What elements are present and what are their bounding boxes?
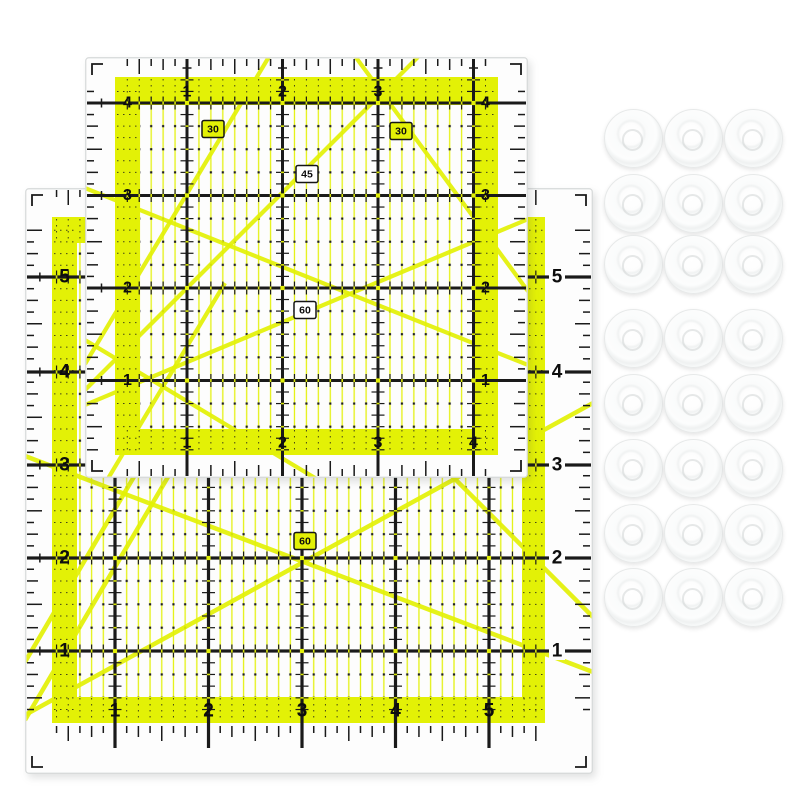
- ruler-number-right: 2: [552, 548, 563, 569]
- ruler-number-right: 4: [481, 95, 490, 112]
- disc-inner-ring: [742, 194, 764, 216]
- plastic-disc: [604, 439, 663, 498]
- plastic-disc: [724, 109, 783, 168]
- plastic-disc: [604, 109, 663, 168]
- disc-inner-ring: [742, 255, 764, 277]
- plastic-disc: [664, 235, 723, 294]
- ruler-number-right: 5: [552, 267, 563, 288]
- disc-inner-ring: [682, 329, 704, 351]
- angle-label: 30: [207, 124, 219, 136]
- angle-label: 60: [299, 536, 311, 548]
- ruler-number-left: 5: [59, 267, 70, 288]
- ruler-number-bottom: 3: [297, 701, 308, 722]
- disc-inner-ring: [622, 194, 644, 216]
- disc-inner-ring: [622, 588, 644, 610]
- plastic-disc: [664, 309, 723, 368]
- ruler-number-bottom: 2: [203, 701, 214, 722]
- disc-inner-ring: [682, 129, 704, 151]
- plastic-disc: [724, 504, 783, 563]
- plastic-disc: [604, 235, 663, 294]
- disc-inner-ring: [682, 394, 704, 416]
- plastic-disc: [664, 374, 723, 433]
- plastic-disc: [724, 374, 783, 433]
- disc-inner-ring: [682, 194, 704, 216]
- disc-inner-ring: [622, 255, 644, 277]
- plastic-disc: [664, 174, 723, 233]
- disc-inner-ring: [742, 459, 764, 481]
- disc-inner-ring: [682, 459, 704, 481]
- angle-label: 30: [395, 126, 407, 138]
- plastic-disc: [604, 309, 663, 368]
- plastic-disc: [724, 174, 783, 233]
- plastic-disc: [664, 439, 723, 498]
- plastic-disc: [724, 309, 783, 368]
- ruler-number-bottom: 3: [374, 435, 383, 452]
- ruler-number-bottom: 4: [469, 435, 478, 452]
- ruler-number-right: 1: [552, 641, 563, 662]
- ruler-number-right: 2: [481, 280, 490, 297]
- disc-inner-ring: [742, 588, 764, 610]
- disc-inner-ring: [622, 394, 644, 416]
- disc-inner-ring: [682, 255, 704, 277]
- ruler-number-right: 3: [481, 187, 490, 204]
- ruler-number-top: 3: [374, 84, 383, 101]
- ruler-number-top: 1: [183, 84, 192, 101]
- ruler-number-left: 4: [59, 362, 70, 383]
- plastic-disc: [664, 109, 723, 168]
- plastic-disc: [724, 568, 783, 627]
- ruler-number-top: 2: [278, 84, 287, 101]
- product-photo: 12345543215432160 1231234432143213030456…: [0, 0, 800, 800]
- ruler-number-right: 4: [552, 362, 563, 383]
- plastic-disc: [604, 568, 663, 627]
- angle-label: 60: [299, 305, 311, 317]
- disc-inner-ring: [622, 129, 644, 151]
- angle-label: 45: [301, 169, 313, 181]
- plastic-disc: [724, 235, 783, 294]
- disc-inner-ring: [622, 524, 644, 546]
- small-square-quilting-ruler: 12312344321432130304560: [85, 57, 528, 478]
- disc-inner-ring: [622, 329, 644, 351]
- ruler-number-left: 4: [123, 95, 132, 112]
- disc-inner-ring: [622, 459, 644, 481]
- ruler-number-left: 3: [59, 455, 70, 476]
- ruler-number-left: 3: [123, 187, 132, 204]
- disc-inner-ring: [742, 524, 764, 546]
- ruler-number-left: 2: [123, 280, 132, 297]
- ruler-number-bottom: 1: [110, 701, 121, 722]
- ruler-number-right: 3: [552, 455, 563, 476]
- ruler-number-left: 1: [59, 641, 70, 662]
- disc-inner-ring: [742, 394, 764, 416]
- disc-inner-ring: [682, 588, 704, 610]
- ruler-number-left: 2: [59, 548, 70, 569]
- ruler-number-bottom: 2: [278, 435, 287, 452]
- disc-inner-ring: [742, 129, 764, 151]
- ruler-number-right: 1: [481, 372, 490, 389]
- disc-inner-ring: [682, 524, 704, 546]
- plastic-disc: [604, 504, 663, 563]
- plastic-disc: [604, 374, 663, 433]
- plastic-disc: [664, 568, 723, 627]
- disc-inner-ring: [742, 329, 764, 351]
- ruler-number-bottom: 5: [484, 701, 495, 722]
- plastic-disc: [724, 439, 783, 498]
- plastic-disc: [604, 174, 663, 233]
- ruler-number-bottom: 1: [183, 435, 192, 452]
- plastic-disc: [664, 504, 723, 563]
- ruler-number-bottom: 4: [390, 701, 401, 722]
- ruler-number-left: 1: [123, 372, 132, 389]
- angle-labels: 60: [294, 533, 316, 550]
